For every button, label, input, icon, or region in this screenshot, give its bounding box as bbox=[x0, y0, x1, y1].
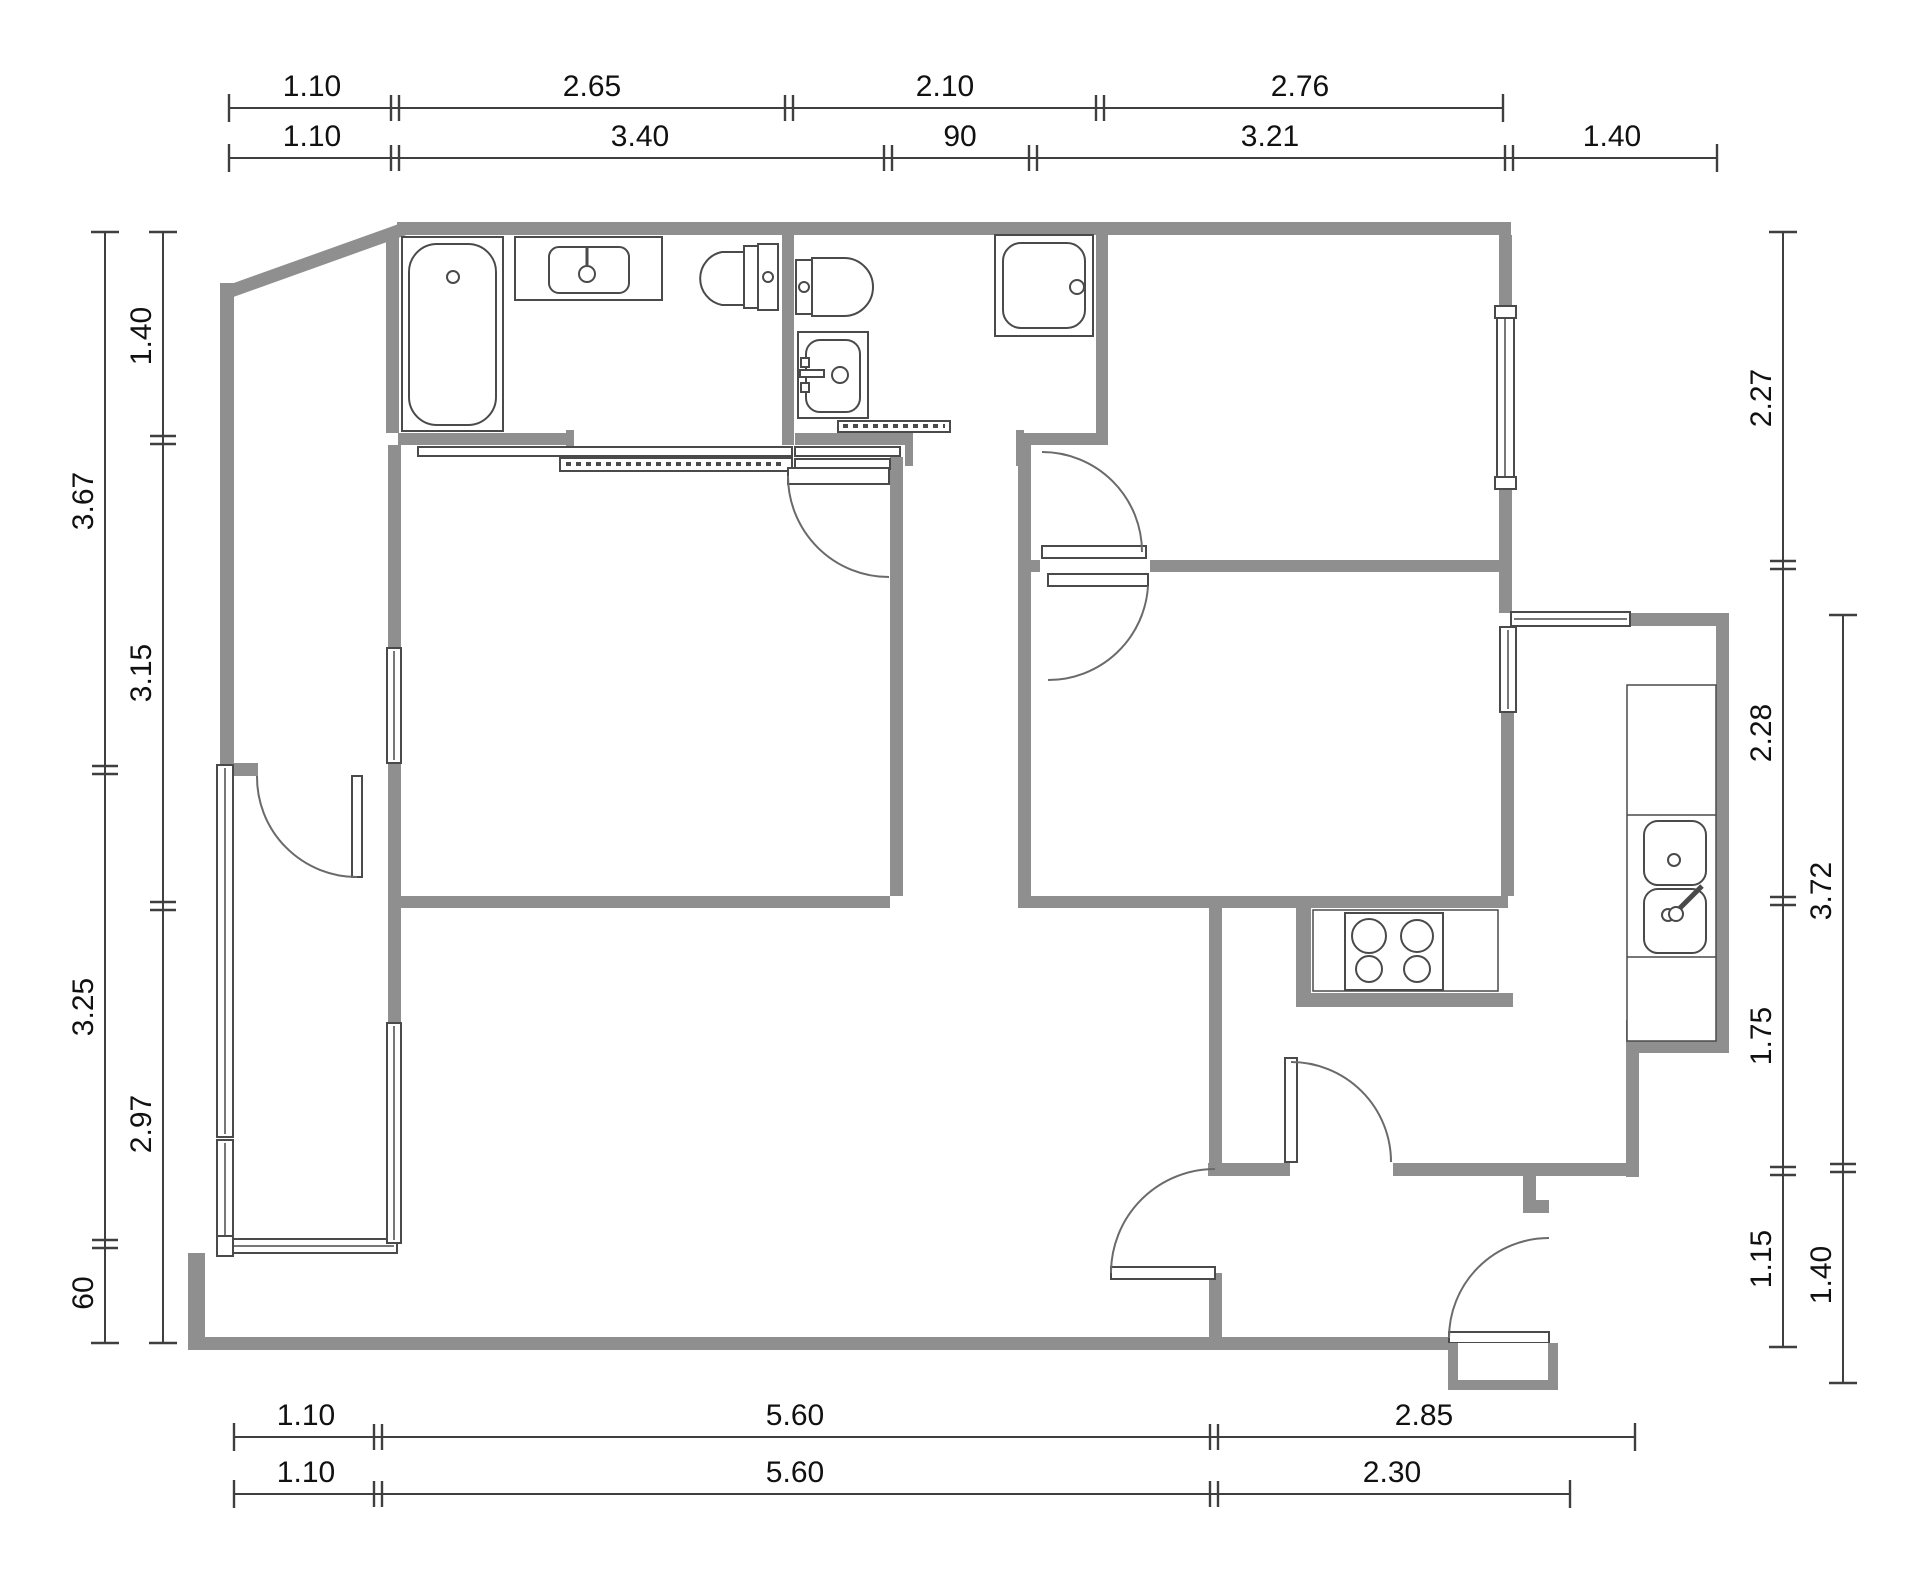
kitchen-double-sink bbox=[1627, 685, 1716, 1041]
toilet bbox=[700, 244, 778, 310]
window-right-kitchen-side bbox=[1500, 627, 1516, 712]
dim-label: 2.65 bbox=[563, 70, 621, 103]
dim-label: 1.10 bbox=[283, 70, 341, 103]
dim-label: 1.40 bbox=[1805, 1246, 1838, 1304]
dim-left-inner: 1.40 3.15 2.97 bbox=[125, 232, 177, 1343]
dimension-lines-layer: 1.10 2.65 2.10 2.76 1.10 3.40 90 3.21 1.… bbox=[67, 70, 1857, 1508]
dim-label: 2.85 bbox=[1395, 1399, 1453, 1432]
sliding-door-bathroom1 bbox=[418, 447, 792, 471]
dim-left-outer: 3.67 3.25 60 bbox=[67, 232, 119, 1343]
dim-label: 3.72 bbox=[1805, 862, 1838, 920]
dim-label: 3.40 bbox=[611, 120, 669, 153]
door-entrance bbox=[1449, 1238, 1549, 1343]
dim-label: 1.15 bbox=[1745, 1230, 1778, 1288]
dim-label: 3.15 bbox=[125, 644, 158, 702]
dim-label: 2.97 bbox=[125, 1095, 158, 1153]
dim-label: 90 bbox=[943, 120, 976, 153]
bathtub bbox=[402, 237, 503, 431]
dim-top-row1: 1.10 2.65 2.10 2.76 bbox=[229, 70, 1503, 122]
dim-label: 1.10 bbox=[277, 1399, 335, 1432]
dim-label: 1.10 bbox=[277, 1456, 335, 1489]
window-left-bottom bbox=[217, 1236, 397, 1256]
dim-top-row2: 1.10 3.40 90 3.21 1.40 bbox=[229, 120, 1717, 172]
door-top-right-bedroom bbox=[1042, 452, 1146, 558]
vanity-sink bbox=[515, 237, 662, 300]
dim-bottom-row2: 1.10 5.60 2.30 bbox=[234, 1456, 1570, 1508]
bidet bbox=[796, 258, 873, 316]
window-interior-lower bbox=[387, 1023, 401, 1243]
dim-label: 2.30 bbox=[1363, 1456, 1421, 1489]
dim-label: 3.67 bbox=[67, 472, 100, 530]
dim-label: 2.27 bbox=[1745, 369, 1778, 427]
dim-label: 5.60 bbox=[766, 1456, 824, 1489]
dim-label: 60 bbox=[67, 1276, 100, 1309]
door-left-bedroom bbox=[788, 468, 889, 577]
window-kitchen-top bbox=[1511, 612, 1630, 626]
dim-label: 2.28 bbox=[1745, 704, 1778, 762]
dim-label: 5.60 bbox=[766, 1399, 824, 1432]
dim-label: 3.25 bbox=[67, 978, 100, 1036]
door-middle-bedroom bbox=[1048, 574, 1148, 680]
dim-bottom-row1: 1.10 5.60 2.85 bbox=[234, 1399, 1635, 1451]
dim-label: 1.75 bbox=[1745, 1007, 1778, 1065]
dim-label: 2.76 bbox=[1271, 70, 1329, 103]
door-terrace-room bbox=[257, 776, 362, 877]
dim-right-outer: 3.72 1.40 bbox=[1805, 615, 1857, 1383]
dim-label: 2.10 bbox=[916, 70, 974, 103]
washbasin bbox=[798, 332, 868, 418]
dim-label: 3.21 bbox=[1241, 120, 1299, 153]
shower-tray bbox=[995, 235, 1093, 336]
floor-plan-canvas: 1.10 2.65 2.10 2.76 1.10 3.40 90 3.21 1.… bbox=[0, 0, 1920, 1572]
entry-step bbox=[1448, 1343, 1558, 1390]
door-living-to-hall bbox=[1111, 1169, 1215, 1279]
dim-label: 1.40 bbox=[1583, 120, 1641, 153]
floor-plan: 1.10 2.65 2.10 2.76 1.10 3.40 90 3.21 1.… bbox=[0, 0, 1920, 1572]
window-right-bedroom bbox=[1495, 306, 1516, 489]
door-dining-to-hall bbox=[1285, 1058, 1391, 1162]
fixtures-layer bbox=[402, 235, 1716, 1041]
cooktop-hob bbox=[1313, 910, 1498, 991]
dim-label: 1.40 bbox=[125, 307, 158, 365]
window-left-tall bbox=[217, 765, 233, 1243]
dim-label: 1.10 bbox=[283, 120, 341, 153]
dim-right-inner: 2.27 2.28 1.75 1.15 bbox=[1745, 232, 1797, 1347]
window-interior-upper bbox=[387, 648, 401, 763]
